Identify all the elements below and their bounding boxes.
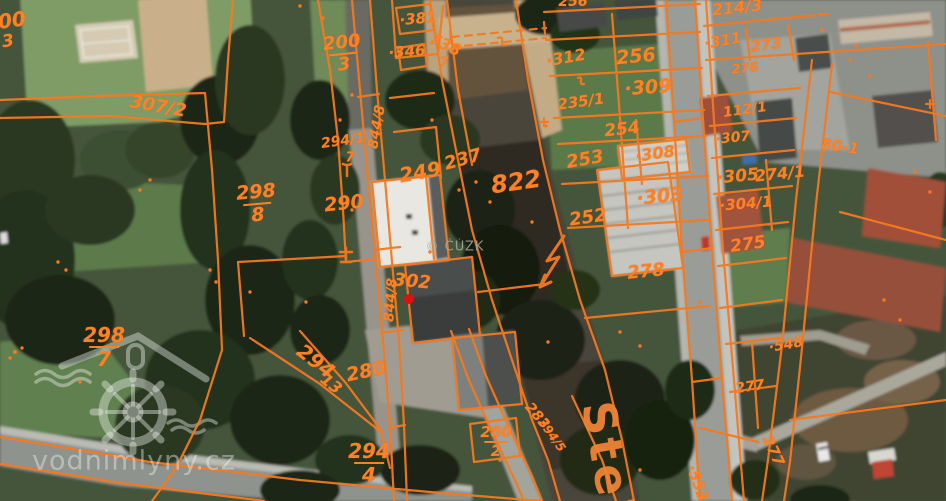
map-label-307: ·307 xyxy=(715,129,751,147)
map-label-275: 275 xyxy=(729,234,767,256)
map-label-305: ·305 xyxy=(716,167,759,188)
map-label-278: 278 xyxy=(626,261,665,283)
map-label-298-8: 2988 xyxy=(235,181,278,226)
map-label-548: ·548 xyxy=(768,335,804,355)
map-label-381: ·381 xyxy=(399,10,437,28)
map-label-822: 822 xyxy=(490,167,543,198)
map-label-280-2: 2802 xyxy=(480,425,511,459)
map-label-3072: 307/2 xyxy=(129,93,188,121)
map-label-253: 253 xyxy=(565,148,605,172)
map-label-3041: ·304/1 xyxy=(719,194,773,214)
map-label-2741: 274/1 xyxy=(754,163,806,184)
map-label-252: 252 xyxy=(568,206,608,229)
cuzk-attribution: © ČÚZK xyxy=(426,240,485,255)
map-label-308: ·308 xyxy=(634,143,675,164)
map-label-309: ·309 xyxy=(624,77,672,99)
map-label-346: ·346 xyxy=(388,43,426,61)
map-label-3: 3 xyxy=(1,33,15,51)
map-label-7: 7 xyxy=(439,57,448,70)
map-label-273: 273 xyxy=(749,35,782,54)
map-label-277: 277 xyxy=(735,378,766,396)
map-label-298-7: 2987 xyxy=(83,325,125,369)
map-label-249: 249 xyxy=(398,159,443,186)
map-label-8448: 844/8 xyxy=(366,104,387,150)
map-label-7: 7 xyxy=(345,152,354,165)
map-label-300: 300 xyxy=(0,8,27,34)
map-label-8448: 844/8 xyxy=(382,277,400,322)
map-label-277: 277 xyxy=(760,434,787,469)
cadastral-map-viewport[interactable]: © ČÚZK vodnimlyny.cz 3003307/22988290200… xyxy=(0,0,946,501)
map-label-303: ·303 xyxy=(636,185,685,209)
map-label-1121: 112/1 xyxy=(722,100,768,120)
map-label-256: 256 xyxy=(558,0,587,9)
map-label-237: 237 xyxy=(443,146,484,173)
map-label-311: ·311 xyxy=(703,30,742,51)
map-label-Stein: Stein xyxy=(575,398,647,501)
map-label-2941: 294/1 xyxy=(320,131,366,151)
map-label-280: 280 xyxy=(345,359,388,386)
map-label-254: 254 xyxy=(603,120,640,141)
map-labels-layer: © ČÚZK vodnimlyny.cz 3003307/22988290200… xyxy=(0,0,946,501)
map-label-2351: 235/1 xyxy=(557,91,606,112)
map-label-294-4: 2944 xyxy=(348,441,390,485)
map-label-2143: 214/3 xyxy=(711,0,763,19)
map-label-312: ·312 xyxy=(545,47,587,70)
map-label-256: 256 xyxy=(615,46,656,68)
map-label-290: 290 xyxy=(323,192,364,215)
map-label-276: 276 xyxy=(731,61,759,77)
map-label-200-3: 2003 xyxy=(322,32,364,76)
map-label-80-1: 80-1 xyxy=(820,137,859,157)
map-label-553: ·553 xyxy=(684,463,711,501)
site-watermark-text: vodnimlyny.cz xyxy=(32,446,236,477)
